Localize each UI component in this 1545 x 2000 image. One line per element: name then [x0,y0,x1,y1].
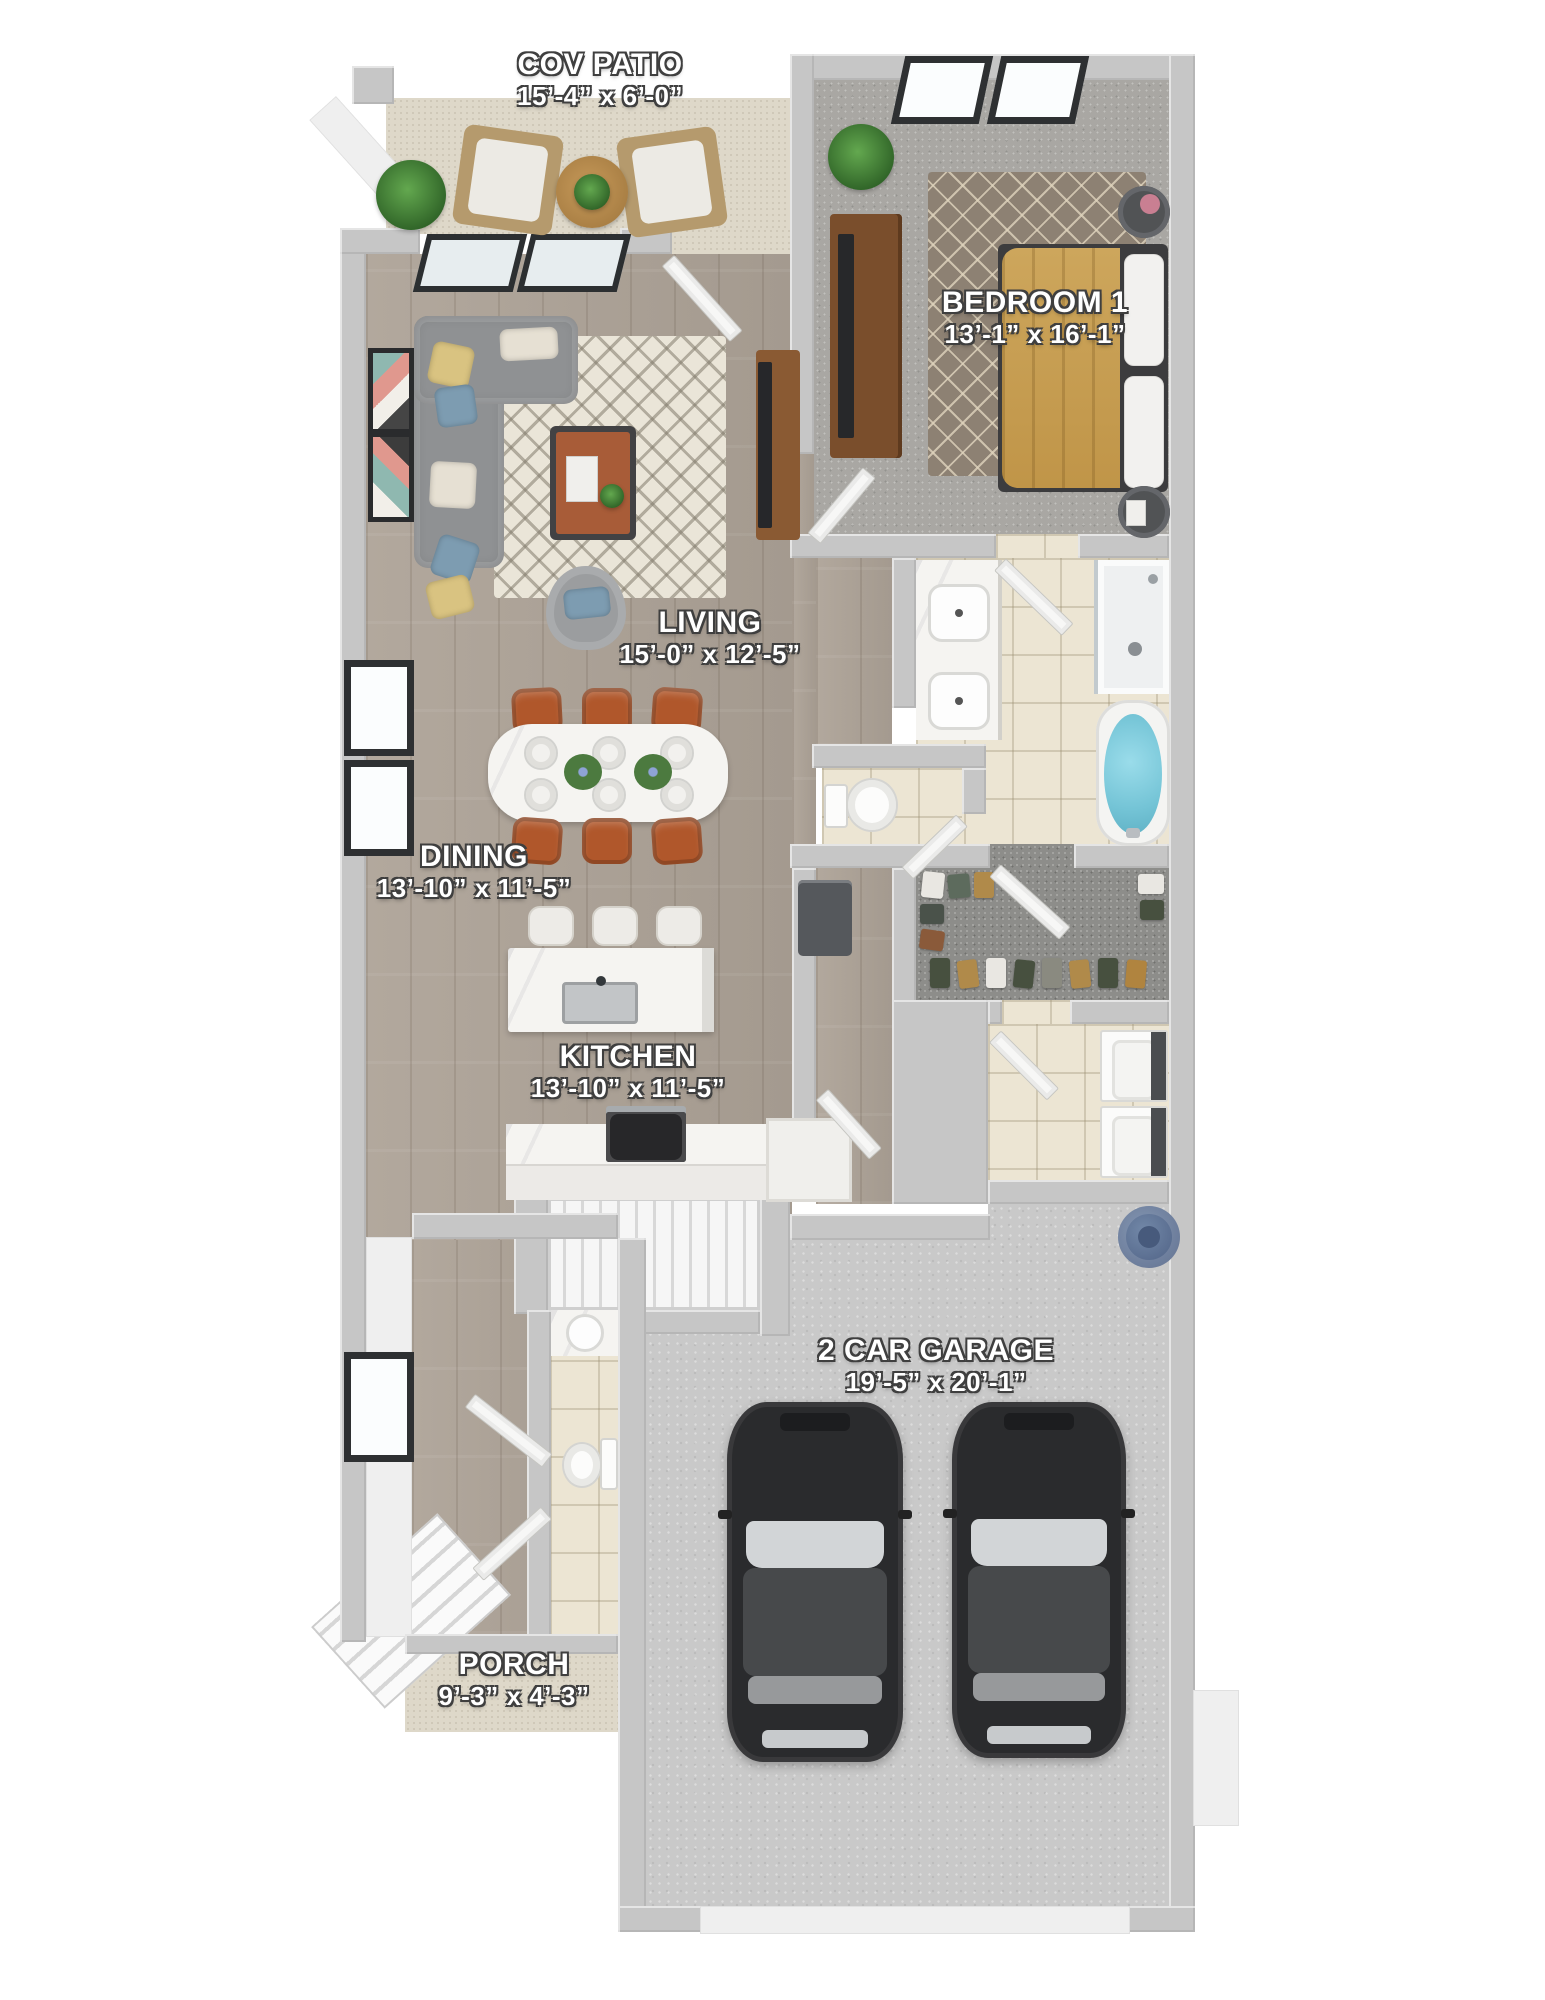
room-name: BEDROOM 1 [942,286,1128,320]
island-stool-2 [592,906,638,946]
closet-item [956,959,979,989]
car-1-sunroof [780,1413,850,1431]
closet-item [947,873,971,899]
car-1-roof [743,1568,887,1676]
room-label-cov-patio: COV PATIO 15’-4” x 6’-0” [517,48,683,111]
car-2-rear-window [973,1673,1105,1701]
bed-pillow-1 [1124,254,1164,366]
powder-toilet-tank [600,1438,618,1490]
bed-duvet [1002,248,1120,488]
patio-chair-2-cushion [631,139,713,224]
wall-entry-top [412,1213,618,1239]
sofa-pillow-yellow-1 [426,340,476,390]
hall-floor-upper [816,558,892,746]
car-1 [727,1402,903,1762]
entry-window [344,1352,414,1462]
car-1-tail [762,1730,868,1748]
dining-window-1 [344,660,414,756]
island-stool-1 [528,906,574,946]
car-2-mirror-left [943,1509,957,1518]
wall-bath-left [892,558,916,708]
room-label-bedroom-1: BEDROOM 1 13’-1” x 16’-1” [942,286,1128,349]
powder-toilet-bowl [562,1442,602,1488]
room-dims: 19’-5” x 20’-1” [818,1368,1054,1397]
dryer [1100,1106,1168,1178]
wc-toilet-bowl [846,778,898,832]
bed-pillow-2 [1124,376,1164,488]
bath-sink-2-drain [955,697,963,705]
wall-closet-laundry-b [1070,1000,1169,1024]
plate-1 [524,736,558,770]
car-1-rear-window [748,1676,882,1705]
patio-table-plant [574,174,610,210]
closet-item [930,958,950,988]
closet-item [919,928,946,951]
wall-powder-left [527,1310,551,1640]
washer [1100,1030,1168,1102]
hall-connector-floor [792,558,816,868]
car-2-roof [968,1566,1111,1673]
kitchen-counter-right [766,1118,852,1202]
wall-art-1 [368,348,414,434]
car-1-mirror-right [898,1510,912,1519]
patio-door-threshold [672,228,790,254]
garage-door-panel [700,1906,1130,1934]
wall-bath-bottom-a [790,844,990,868]
closet-item [1042,958,1062,988]
bathroom-door-threshold [996,534,1078,558]
wall-art-2 [368,432,414,522]
laundry-door-threshold [1002,1000,1070,1024]
room-name: 2 CAR GARAGE [818,1334,1054,1368]
bedroom-plant [828,124,894,190]
floorplan-canvas: COV PATIO 15’-4” x 6’-0” BEDROOM 1 13’-1… [0,0,1545,2000]
room-label-kitchen: KITCHEN 13’-10” x 11’-5” [531,1040,725,1103]
kitchen-cabinets [506,1164,768,1200]
island-waterfall-edge [702,948,714,1032]
room-dims: 13’-10” x 11’-5” [531,1074,725,1103]
roof-wing-box [352,66,394,104]
room-label-porch: PORCH 9’-3” x 4’-3” [438,1648,589,1711]
closet-item [1069,959,1092,989]
closet-item [1125,959,1147,989]
closet-item [920,904,944,924]
room-dims: 13’-10” x 11’-5” [377,874,571,903]
dryer-lid [1112,1116,1156,1176]
tv-screen [758,362,772,528]
sofa-lumbar-pillow [499,327,559,362]
room-dims: 9’-3” x 4’-3” [438,1682,589,1711]
wall-closet-left [892,868,916,1004]
wall-wc-right [962,768,986,814]
wall-bath-bottom-b [1074,844,1169,868]
bedroom-tv [838,234,854,438]
shower-head [1148,574,1158,584]
room-dims: 13’-1” x 16’-1” [942,320,1128,349]
room-dims: 15’-0” x 12’-5” [620,640,801,669]
wall-closet-laundry-a [988,1000,1002,1024]
shower-drain [1128,642,1142,656]
accent-chair-pillow [563,586,612,621]
wall-living-top-a [340,228,420,254]
washer-lid [1112,1040,1156,1100]
coffee-table-books [566,456,598,502]
closet-door-threshold [990,844,1074,868]
wall-stair-right [760,1198,790,1336]
room-label-dining: DINING 13’-10” x 11’-5” [377,840,571,903]
centerpiece-1 [564,754,602,790]
sofa-pillow-cream [429,461,477,509]
wall-right-exterior [1169,54,1195,1930]
wall-laundry-bottom [988,1180,1169,1204]
island-sink [562,982,638,1024]
sofa-pillow-blue-1 [433,383,478,428]
wall-garage-left [618,1238,646,1930]
room-name: PORCH [438,1648,589,1682]
washer-panel [1151,1032,1166,1100]
patio-plant [376,160,446,230]
wc-toilet-tank [824,784,848,828]
wall-chase [892,1000,988,1204]
car-1-mirror-left [718,1510,732,1519]
bath-sink-1-drain [955,609,963,617]
plate-4 [524,778,558,812]
room-label-garage: 2 CAR GARAGE 19’-5” x 20’-1” [818,1334,1054,1397]
bedroom-window-2 [987,56,1089,124]
room-name: LIVING [620,606,801,640]
car-2-tail [987,1726,1091,1744]
range-stove [606,1112,686,1162]
closet-item [1138,874,1164,894]
centerpiece-2 [634,754,672,790]
closet-item [1098,958,1118,988]
yard-wall-bottom-right [1193,1690,1239,1826]
water-heater-cap [1138,1226,1160,1248]
patio-chair-1-cushion [467,137,549,222]
car-2-mirror-right [1121,1509,1135,1518]
island-stool-3 [656,906,702,946]
room-name: KITCHEN [531,1040,725,1074]
bedroom-window-1 [891,56,993,124]
bathtub-water [1104,714,1162,834]
closet-item [921,871,946,899]
car-2-windshield [971,1519,1107,1565]
wall-bed-bath-b [1078,534,1169,558]
island-faucet [596,976,606,986]
sliding-door-panel-2 [517,234,631,292]
closet-item [1140,900,1164,920]
wall-wc-top [812,744,986,768]
car-2-sunroof [1004,1413,1074,1431]
dining-chair-bottom-2 [582,818,632,864]
room-name: DINING [377,840,571,874]
room-name: COV PATIO [517,48,683,82]
room-label-living: LIVING 15’-0” x 12’-5” [620,606,801,669]
nightstand-2-book [1126,500,1146,526]
dining-chair-bottom-3 [650,816,703,865]
closet-item [1013,959,1036,989]
dryer-panel [1151,1108,1166,1176]
powder-sink [566,1314,604,1352]
wall-garage-top-right [790,1214,990,1240]
car-2 [952,1402,1126,1758]
closet-item [986,958,1006,988]
sliding-door-panel-1 [413,234,527,292]
car-1-windshield [746,1521,883,1568]
nightstand-flowers [1140,194,1160,214]
refrigerator [798,880,852,956]
bathtub-faucet [1126,828,1140,838]
room-dims: 15’-4” x 6’-0” [517,82,683,111]
coffee-table-plant [600,484,624,508]
